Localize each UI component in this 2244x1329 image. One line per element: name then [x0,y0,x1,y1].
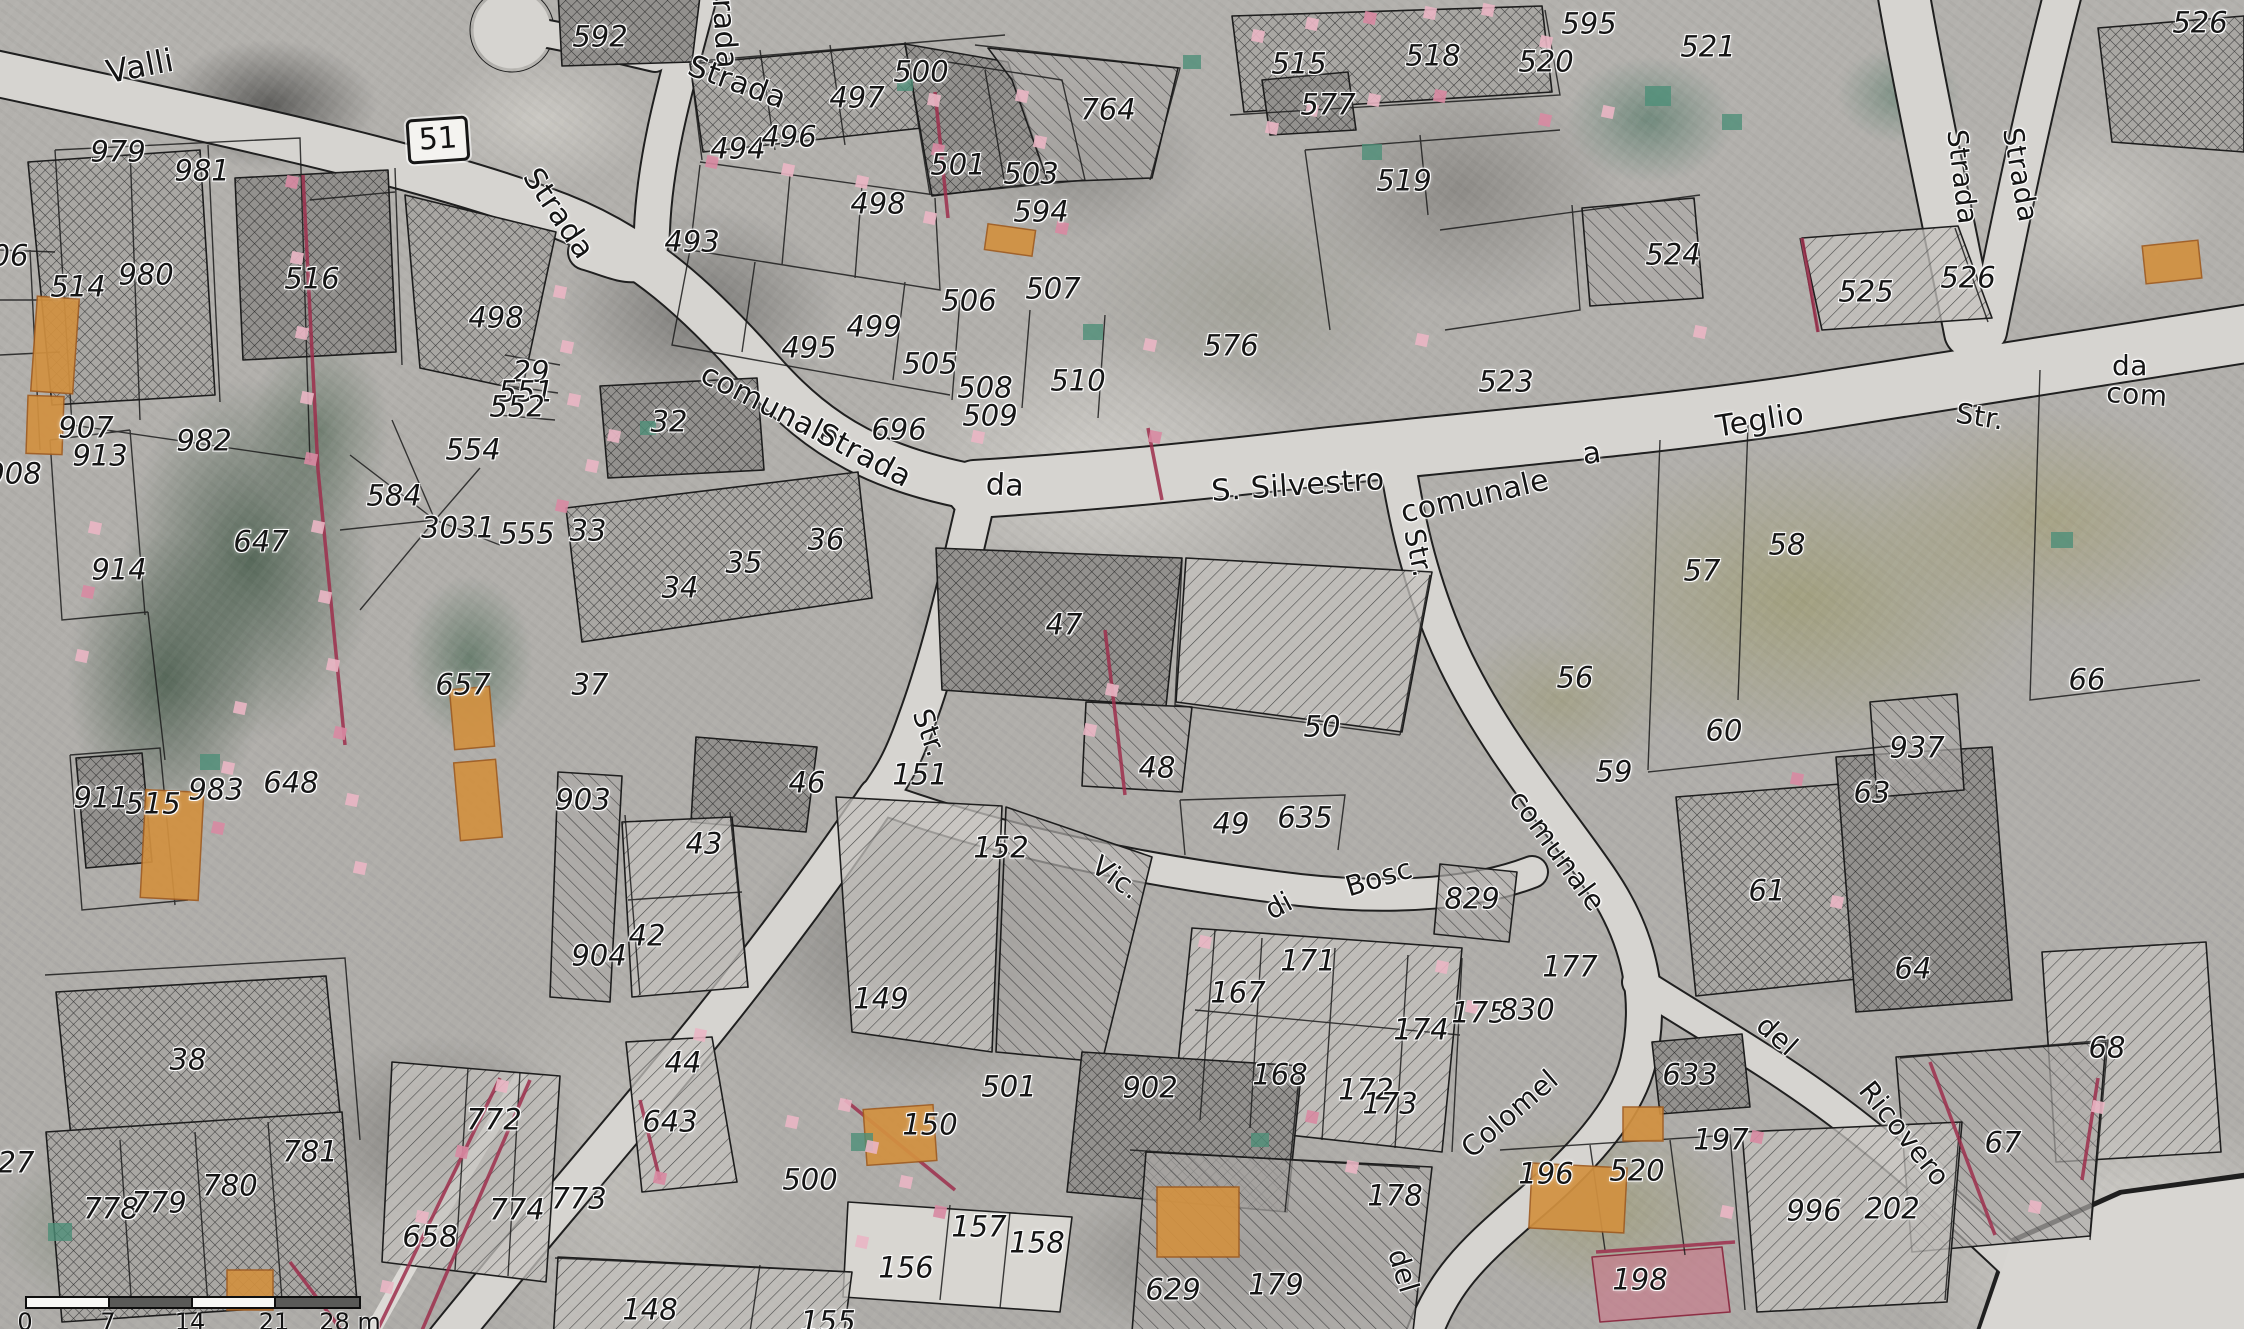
street-label: Str. [1954,399,2006,434]
parcel-number-label: 06 [0,242,28,271]
parcel-number-label: 179 [1248,1271,1303,1300]
parcel-number-label: 523 [1478,368,1533,397]
parcel-number-label: 167 [1210,979,1265,1008]
parcel-number-label: 525 [1838,278,1893,307]
parcel-number-label: 59 [1596,758,1633,787]
street-label: a [1581,438,1604,470]
parcel-number-label: 903 [555,786,610,815]
street-label: da [2112,352,2148,380]
parcel-number-label: 509 [962,402,1017,431]
parcel-number-label: 197 [1693,1126,1748,1155]
parcel-number-label: 904 [571,942,626,971]
parcel-number-label: 50 [1304,713,1341,742]
parcel-number-label: 499 [846,313,901,342]
parcel-number-label: 198 [1612,1266,1667,1295]
parcel-number-label: 500 [782,1166,837,1195]
parcel-number-label: 510 [1050,367,1105,396]
parcel-number-label: 996 [1786,1197,1841,1226]
parcel-number-label: 577 [1300,91,1355,120]
parcel-number-label: 584 [366,482,421,511]
parcel-number-label: 507 [1025,275,1080,304]
parcel-number-label: 518 [1405,42,1460,71]
parcel-number-label: 913 [72,442,127,471]
parcel-number-label: 148 [622,1296,677,1325]
parcel-number-label: 493 [664,228,719,257]
parcel-number-label: 515 [1271,50,1326,79]
parcel-number-label: 58 [1769,531,1806,560]
parcel-number-label: 696 [871,416,926,445]
parcel-number-label: 830 [1499,996,1554,1025]
parcel-number-label: 152 [973,834,1028,863]
parcel-number-label: 648 [263,769,318,798]
parcel-number-label: 33 [570,517,607,546]
parcel-number-label: 500 [893,58,948,87]
parcel-number-label: 27 [0,1149,34,1178]
parcel-number-label: 520 [1609,1157,1664,1186]
parcel-number-label: 592 [572,23,627,52]
parcel-number-label: 56 [1557,664,1594,693]
parcel-number-label: 61 [1749,877,1786,906]
scale-bar-segment [25,1296,112,1309]
parcel-number-label: 66 [2069,666,2106,695]
parcel-number-label: 35 [726,549,763,578]
parcel-number-label: 57 [1684,557,1721,586]
parcel-number-label: 555 [499,520,554,549]
scale-bar-number: 7 [100,1308,115,1329]
parcel-number-label: 151 [892,761,947,790]
parcel-number-label: 503 [1003,160,1058,189]
parcel-number-label: 501 [981,1073,1036,1102]
parcel-number-label: 576 [1203,332,1258,361]
parcel-number-label: 635 [1277,804,1332,833]
parcel-number-label: 633 [1662,1061,1717,1090]
parcel-number-label: 629 [1145,1276,1200,1305]
parcel-number-label: 983 [188,776,243,805]
parcel-number-label: 980 [118,261,173,290]
parcel-number-label: 774 [489,1196,544,1225]
map-viewport[interactable]: ValliStradaStradaStradacomunaleStradadaS… [0,0,2244,1329]
parcel-number-label: 150 [902,1111,957,1140]
parcel-number-label: 64 [1895,955,1932,984]
parcel-number-label: 67 [1985,1129,2022,1158]
parcel-number-label: 772 [466,1106,521,1135]
parcel-number-label: 171 [1280,947,1335,976]
scale-bar-number: 14 [175,1308,206,1329]
parcel-number-label: 526 [1940,264,1995,293]
parcel-number-label: 44 [665,1049,702,1078]
parcel-number-label: 34 [662,574,699,603]
parcel-number-label: 155 [800,1308,855,1329]
parcel-number-label: 780 [202,1172,257,1201]
parcel-number-label: 908 [0,460,42,489]
parcel-number-label: 911 [73,784,128,813]
parcel-number-label: 68 [2089,1034,2126,1063]
parcel-number-label: 178 [1367,1182,1422,1211]
parcel-number-label: 937 [1889,734,1944,763]
parcel-number-label: 174 [1393,1016,1448,1045]
parcel-number-label: 3031 [421,514,495,543]
parcel-number-label: 526 [2172,9,2227,38]
parcel-number-label: 643 [642,1108,697,1137]
street-label: da [985,470,1025,502]
parcel-number-label: 515 [125,790,180,819]
parcel-number-label: 657 [435,671,490,700]
parcel-number-label: 173 [1362,1090,1417,1119]
parcel-number-label: 63 [1854,779,1891,808]
parcel-number-label: 49 [1213,810,1250,839]
parcel-number-label: 495 [781,334,836,363]
parcel-number-label: 781 [282,1138,337,1167]
parcel-number-label: 501 [930,151,985,180]
parcel-number-label: 177 [1542,953,1597,982]
parcel-number-label: 37 [572,671,609,700]
parcel-number-label: 594 [1013,198,1068,227]
parcel-number-label: 47 [1046,611,1083,640]
parcel-number-label: 168 [1252,1061,1307,1090]
parcel-number-label: 521 [1680,33,1735,62]
parcel-number-label: 779 [131,1189,186,1218]
parcel-number-label: 829 [1444,885,1499,914]
parcel-number-label: 524 [1645,241,1700,270]
parcel-number-label: 156 [878,1254,933,1283]
parcel-number-label: 514 [50,273,105,302]
parcel-number-label: 519 [1376,167,1431,196]
parcel-number-label: 32 [651,408,688,437]
parcel-number-label: 979 [90,138,145,167]
parcel-number-label: 552 [489,393,544,422]
parcel-number-label: 498 [850,190,905,219]
parcel-number-label: 505 [902,350,957,379]
scale-bar-number: 28 m [319,1308,381,1329]
scale-bar-number: 21 [259,1308,290,1329]
parcel-number-label: 520 [1518,48,1573,77]
parcel-number-label: 554 [445,436,500,465]
parcel-number-label: 902 [1122,1074,1177,1103]
parcel-number-label: 494 [710,135,765,164]
parcel-number-label: 42 [629,922,666,951]
parcel-number-label: 496 [761,123,816,152]
street-label: Str. [1399,526,1436,579]
parcel-number-label: 43 [686,830,723,859]
parcel-number-label: 658 [402,1223,457,1252]
parcel-number-label: 981 [174,157,229,186]
parcel-number-label: 149 [853,985,908,1014]
parcel-number-label: 48 [1139,754,1176,783]
road-number-badge: 51 [405,115,470,164]
parcel-number-label: 202 [1864,1195,1919,1224]
parcel-number-label: 914 [91,556,146,585]
parcel-number-label: 498 [468,304,523,333]
parcel-number-label: 506 [941,287,996,316]
street-label: com [2105,379,2168,411]
parcel-number-label: 38 [170,1046,207,1075]
parcel-number-label: 647 [233,528,288,557]
parcel-number-label: 158 [1009,1229,1064,1258]
scale-bar-number: 0 [17,1308,32,1329]
parcel-number-label: 46 [789,769,826,798]
parcel-number-label: 196 [1518,1160,1573,1189]
parcel-number-label: 157 [951,1213,1006,1242]
parcel-number-label: 497 [829,84,884,113]
parcel-number-label: 36 [808,526,845,555]
parcel-number-label: 516 [284,265,339,294]
parcel-number-label: 773 [551,1185,606,1214]
parcel-number-label: 982 [176,427,231,456]
parcel-number-label: 60 [1706,717,1743,746]
parcel-number-label: 595 [1561,10,1616,39]
parcel-number-label: 764 [1080,96,1135,125]
